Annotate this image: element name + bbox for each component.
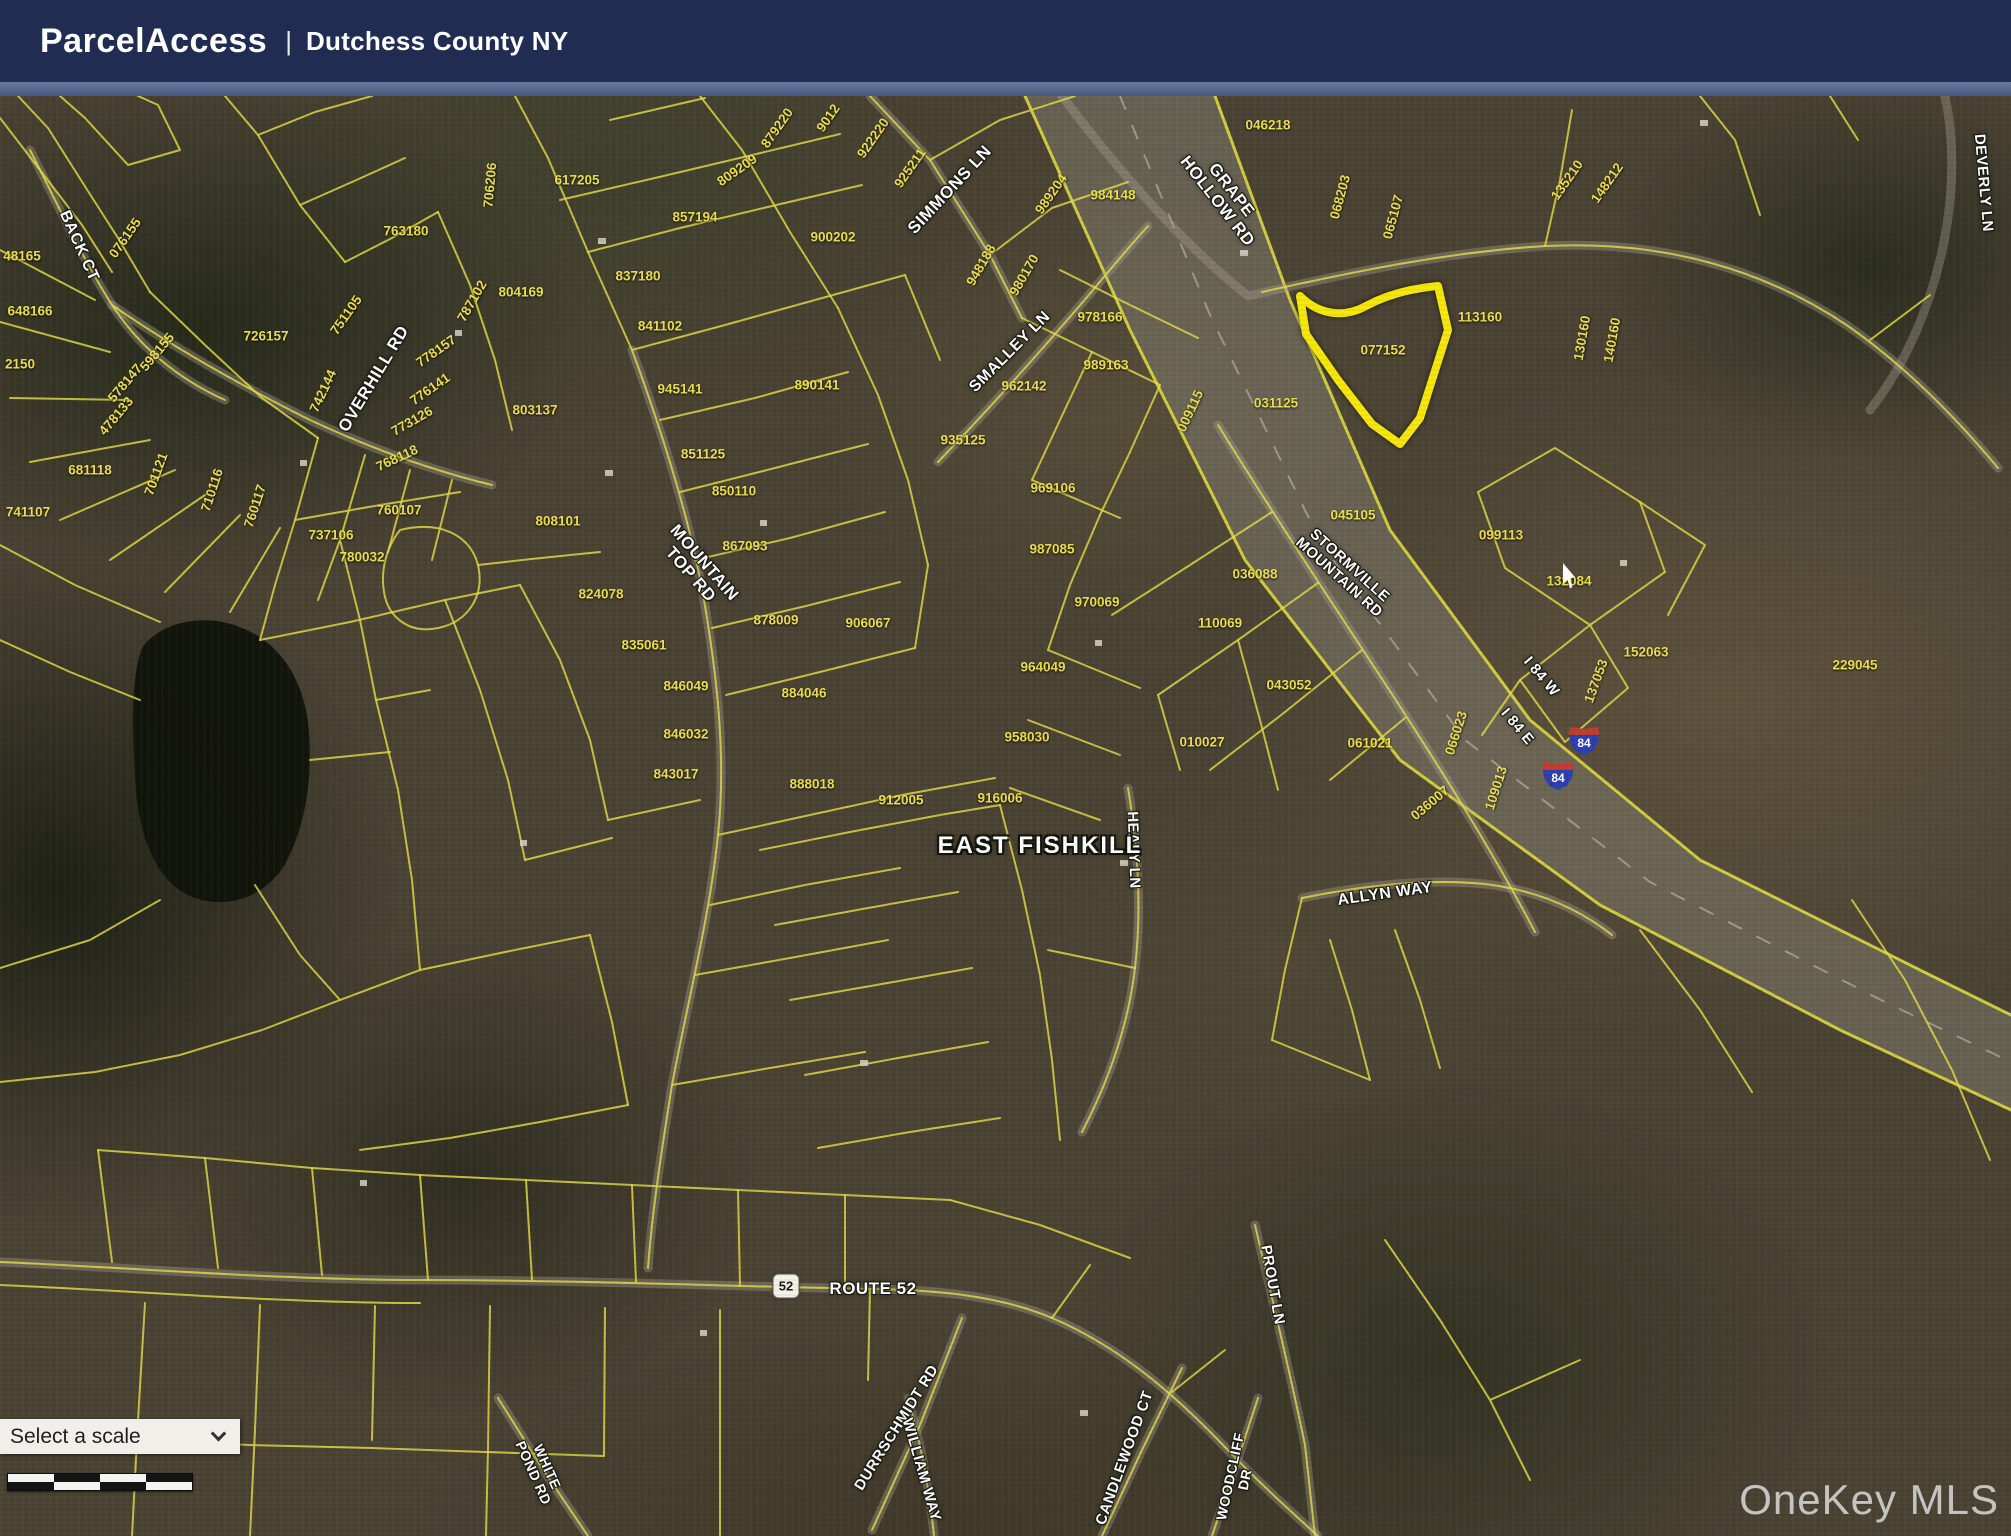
scale-dropdown[interactable]: Select a scale	[0, 1419, 240, 1454]
parcel-label-906067: 906067	[845, 616, 890, 631]
parcel-label-780032: 780032	[339, 550, 384, 565]
parcel-label-867093: 867093	[722, 539, 767, 554]
interstate-84-shield-icon: 84	[1543, 762, 1574, 790]
parcel-label-964049: 964049	[1020, 660, 1065, 675]
scale-dropdown-label: Select a scale	[10, 1425, 141, 1449]
parcel-label-857194: 857194	[672, 210, 717, 225]
parcel-label-824078: 824078	[578, 587, 623, 602]
road-label-candlewood-ct: CANDLEWOOD CT	[1093, 1389, 1157, 1528]
app-header: ParcelAccess | Dutchess County NY	[0, 0, 2011, 82]
parcel-label-989204: 989204	[1032, 171, 1070, 217]
parcel-label-48165: 48165	[3, 249, 41, 264]
parcel-label-970069: 970069	[1074, 595, 1119, 610]
parcel-label-846049: 846049	[663, 679, 708, 694]
parcel-label-837180: 837180	[615, 269, 660, 284]
parcel-access-app: ParcelAccess | Dutchess County NY	[0, 0, 2011, 1536]
parcel-label-778157: 778157	[413, 332, 459, 370]
parcel-label-031125: 031125	[1254, 396, 1298, 411]
parcel-label-884046: 884046	[781, 686, 826, 701]
parcel-label-948188: 948188	[963, 242, 999, 289]
county-title: Dutchess County NY	[306, 26, 569, 57]
parcel-label-046218: 046218	[1245, 118, 1290, 133]
parcel-label-776141: 776141	[407, 370, 453, 408]
parcel-label-9012: 9012	[813, 101, 843, 134]
parcel-label-710116: 710116	[198, 467, 226, 514]
place-label-east-fishkill: EAST FISHKILL	[938, 833, 1143, 859]
onekey-mls-watermark: OneKey MLS	[1739, 1476, 1999, 1524]
road-label-i-84-w: I 84 W	[1520, 654, 1562, 700]
parcel-label-850110: 850110	[712, 484, 756, 499]
parcel-label-135210: 135210	[1548, 157, 1586, 203]
parcel-label-900202: 900202	[810, 230, 855, 245]
parcel-label-787102: 787102	[454, 278, 490, 325]
parcel-label-803137: 803137	[512, 403, 557, 418]
parcel-label-773126: 773126	[389, 403, 436, 439]
state-52-shield-icon: 52	[773, 1274, 800, 1299]
parcel-label-137053: 137053	[1581, 657, 1611, 704]
road-label-stormville-mountain-rd: STORMVILLEMOUNTAIN RD	[1292, 523, 1396, 621]
parcel-label-681118: 681118	[68, 463, 112, 478]
road-label-prout-ln: PROUT LN	[1257, 1244, 1287, 1326]
parcel-label-804169: 804169	[498, 285, 543, 300]
parcel-label-065107: 065107	[1380, 193, 1406, 240]
parcel-label-066023: 066023	[1442, 709, 1470, 756]
parcel-label-987085: 987085	[1029, 542, 1074, 557]
header-strip	[0, 82, 2011, 96]
parcel-label-846032: 846032	[663, 727, 708, 742]
parcel-label-148212: 148212	[1588, 160, 1626, 206]
parcel-label-809209: 809209	[714, 151, 760, 189]
parcel-label-229045: 229045	[1832, 658, 1877, 673]
parcel-label-045105: 045105	[1330, 508, 1375, 523]
parcel-label-741107: 741107	[6, 505, 50, 520]
parcel-label-989163: 989163	[1083, 358, 1128, 373]
road-label-back-ct: BACK CT	[56, 208, 102, 284]
parcel-label-760117: 760117	[241, 483, 269, 530]
parcel-label-978166: 978166	[1077, 310, 1122, 325]
parcel-label-916006: 916006	[977, 791, 1022, 806]
road-label-deverly-ln: DEVERLY LN	[1971, 133, 1996, 232]
scale-bar	[8, 1474, 192, 1490]
parcel-label-036007: 036007	[1408, 783, 1452, 823]
road-label-white-pond-rd: WHITEPOND RD	[512, 1433, 567, 1507]
parcel-label-922220: 922220	[854, 115, 892, 161]
parcel-label-760107: 760107	[376, 503, 421, 518]
parcel-label-878009: 878009	[753, 613, 798, 628]
parcel-label-890141: 890141	[794, 378, 839, 393]
parcel-label-925211: 925211	[891, 146, 929, 191]
road-label-grape-hollow-rd: GRAPEHOLLOW RD	[1176, 142, 1272, 251]
parcel-label-737106: 737106	[308, 528, 353, 543]
road-label-allyn-way: ALLYN WAY	[1336, 879, 1433, 909]
parcel-label-935125: 935125	[940, 433, 985, 448]
parcel-label-076155: 076155	[106, 215, 144, 261]
parcel-label-808101: 808101	[535, 514, 580, 529]
parcel-label-945141: 945141	[657, 382, 702, 397]
parcel-label-841102: 841102	[638, 319, 682, 334]
road-label-william-way: WILLIAM WAY	[899, 1417, 944, 1524]
parcel-label-984148: 984148	[1090, 188, 1135, 203]
parcel-label-768118: 768118	[374, 442, 421, 474]
parcel-label-061021: 061021	[1347, 736, 1392, 751]
road-label-woodcliff-dr: WOODCLIFFDR	[1214, 1431, 1262, 1525]
parcel-label-130160: 130160	[1571, 315, 1594, 362]
road-label-mountain-top-rd: MOUNTAINTOP RD	[652, 521, 742, 616]
parcel-label-009115: 009115	[1174, 388, 1206, 435]
parcel-label-980170: 980170	[1006, 252, 1042, 299]
app-title: ParcelAccess	[40, 22, 267, 61]
parcel-label-099113: 099113	[1479, 528, 1523, 543]
parcel-label-751105: 751105	[327, 293, 365, 338]
chevron-down-icon	[211, 1426, 227, 1442]
parcel-label-077152: 077152	[1360, 343, 1405, 358]
map-viewport[interactable]: 0761554816564816621506811187411077011215…	[0, 96, 2011, 1536]
parcel-label-888018: 888018	[789, 777, 834, 792]
parcel-label-701121: 701121	[141, 451, 170, 498]
parcel-label-113160: 113160	[1458, 310, 1502, 325]
header-divider: |	[285, 26, 292, 57]
parcel-label-706206: 706206	[481, 162, 500, 208]
parcel-label-843017: 843017	[653, 767, 698, 782]
parcel-label-068203: 068203	[1327, 173, 1353, 220]
parcel-label-010027: 010027	[1179, 735, 1224, 750]
parcel-label-152063: 152063	[1623, 645, 1668, 660]
parcel-label-110069: 110069	[1198, 616, 1242, 631]
map-labels-layer: 0761554816564816621506811187411077011215…	[0, 96, 2011, 1536]
parcel-label-043052: 043052	[1266, 678, 1311, 693]
parcel-label-648166: 648166	[7, 304, 52, 319]
parcel-label-763180: 763180	[383, 224, 428, 239]
parcel-label-140160: 140160	[1601, 317, 1624, 364]
parcel-label-726157: 726157	[243, 329, 288, 344]
parcel-label-912005: 912005	[878, 793, 923, 808]
interstate-84-shield-icon: 84	[1569, 727, 1600, 755]
parcel-label-617205: 617205	[554, 173, 599, 188]
parcel-label-2150: 2150	[5, 357, 35, 372]
parcel-label-835061: 835061	[621, 638, 666, 653]
parcel-label-958030: 958030	[1004, 730, 1049, 745]
parcel-label-036088: 036088	[1232, 567, 1277, 582]
parcel-label-109013: 109013	[1482, 764, 1510, 811]
parcel-label-879220: 879220	[758, 105, 796, 151]
parcel-label-742144: 742144	[307, 367, 340, 414]
road-label-i-84-e: I 84 E	[1497, 706, 1537, 749]
parcel-label-598155: 598155	[137, 330, 177, 374]
parcel-label-851125: 851125	[681, 447, 725, 462]
road-label-route-52: ROUTE 52	[829, 1280, 916, 1298]
parcel-label-969106: 969106	[1030, 481, 1075, 496]
parcel-label-962142: 962142	[1001, 379, 1046, 394]
